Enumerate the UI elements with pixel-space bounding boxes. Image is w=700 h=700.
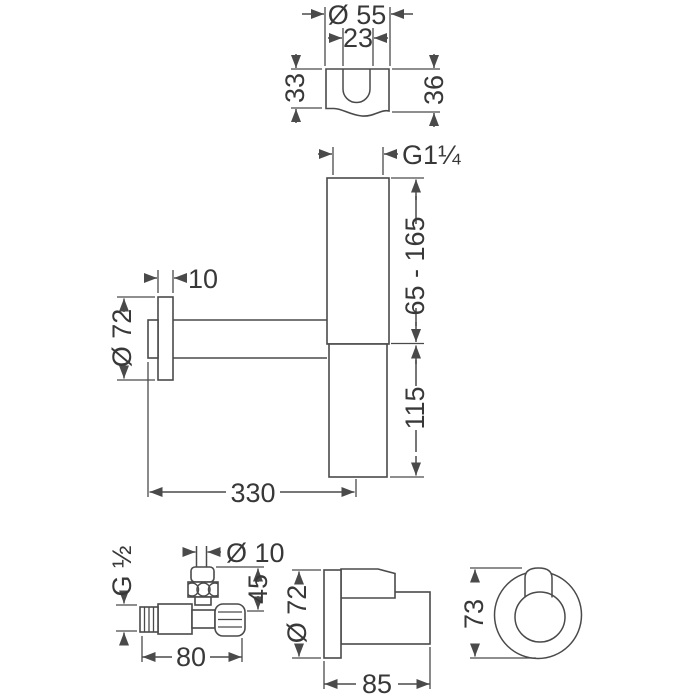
technical-drawing-page: Ø 55 23 33 36 G1¼ 65 - 165 1 xyxy=(0,0,700,700)
dim-main-body-height: 115 xyxy=(400,386,430,429)
valve-neck xyxy=(195,597,211,605)
wall-stub xyxy=(148,320,158,358)
valve-hex-nut xyxy=(188,582,218,597)
valve-outlet-pipe xyxy=(197,546,207,568)
dim-outlet-front-height: 73 xyxy=(459,599,489,629)
dim-main-thread-size: G1¼ xyxy=(402,140,461,170)
outlet-body xyxy=(341,592,430,644)
siphon-cup xyxy=(329,344,387,477)
dim-main-rosette-depth: 10 xyxy=(188,264,218,294)
view-wall-outlet-front: 73 xyxy=(459,568,582,659)
view-wall-outlet-side: Ø 72 85 xyxy=(282,569,430,699)
outlet-upper-tube xyxy=(341,569,395,598)
view-bracket-top: Ø 55 23 33 36 xyxy=(280,0,449,127)
view-siphon-main: G1¼ 65 - 165 115 Ø 72 10 330 xyxy=(107,140,461,508)
dim-valve-height: 45 xyxy=(243,574,273,604)
outlet-rosette xyxy=(324,570,341,658)
dim-outlet-rosette-diameter: Ø 72 xyxy=(282,585,312,644)
dim-outlet-depth: 85 xyxy=(362,669,392,699)
dim-valve-outlet-diameter: Ø 10 xyxy=(226,538,285,568)
dim-bracket-height-left: 33 xyxy=(280,73,310,103)
bottle-trap-dimension-drawing: Ø 55 23 33 36 G1¼ 65 - 165 1 xyxy=(0,0,700,700)
valve-body xyxy=(158,604,192,634)
bracket-outline xyxy=(326,69,389,116)
dim-bracket-height-right: 36 xyxy=(419,75,449,105)
outlet-front-inner-circle xyxy=(515,592,565,642)
view-angle-valve: Ø 10 G ½ 45 80 xyxy=(107,538,285,672)
valve-connector xyxy=(192,610,215,628)
dim-valve-thread-size: G ½ xyxy=(107,545,137,596)
dim-bracket-slot-width: 23 xyxy=(343,23,373,53)
dim-valve-length: 80 xyxy=(176,642,206,672)
dim-main-rosette-diameter: Ø 72 xyxy=(107,309,137,368)
dim-main-projection: 330 xyxy=(230,478,275,508)
valve-cap xyxy=(191,567,214,582)
wall-pipe xyxy=(173,320,327,358)
dim-main-adjustment-range: 65 - 165 xyxy=(400,216,430,315)
wall-rosette xyxy=(158,297,173,380)
siphon-upper-tube xyxy=(327,178,389,344)
